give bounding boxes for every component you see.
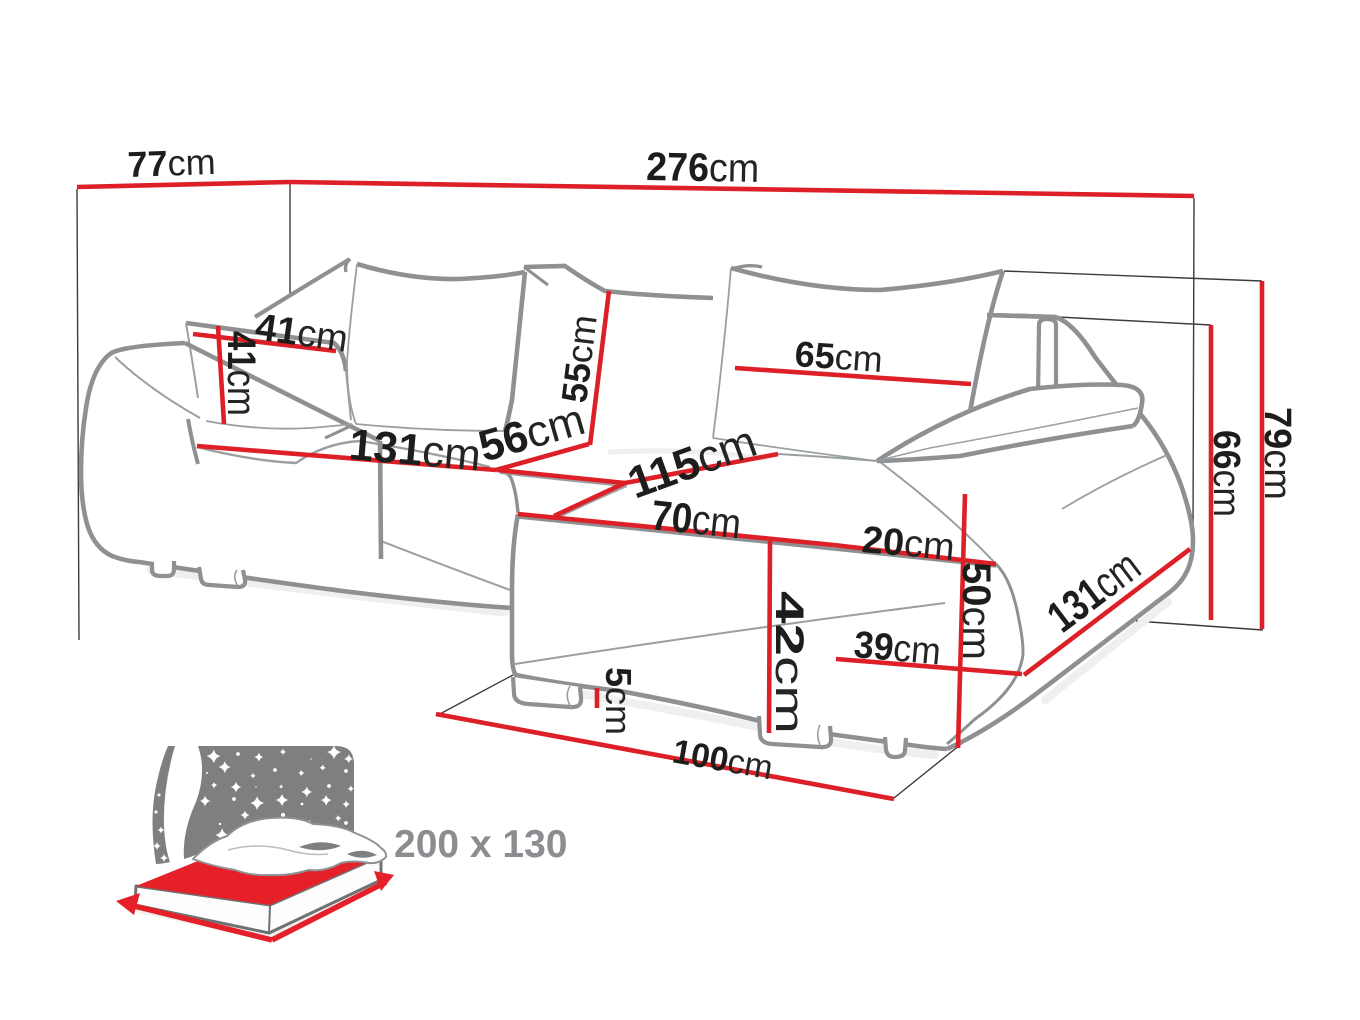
svg-text:79cm: 79cm [1256, 407, 1298, 500]
svg-text:42cm: 42cm [767, 591, 811, 734]
svg-text:50cm: 50cm [954, 562, 998, 660]
svg-text:20cm: 20cm [860, 519, 956, 569]
svg-text:70cm: 70cm [649, 491, 743, 547]
svg-text:66cm: 66cm [1205, 430, 1247, 517]
svg-text:41cm: 41cm [219, 331, 263, 416]
svg-text:65cm: 65cm [793, 333, 884, 380]
svg-text:200 x 130: 200 x 130 [394, 823, 568, 866]
svg-text:276cm: 276cm [646, 145, 760, 191]
svg-text:5cm: 5cm [598, 667, 639, 735]
svg-text:77cm: 77cm [127, 141, 216, 185]
svg-text:39cm: 39cm [852, 624, 942, 673]
